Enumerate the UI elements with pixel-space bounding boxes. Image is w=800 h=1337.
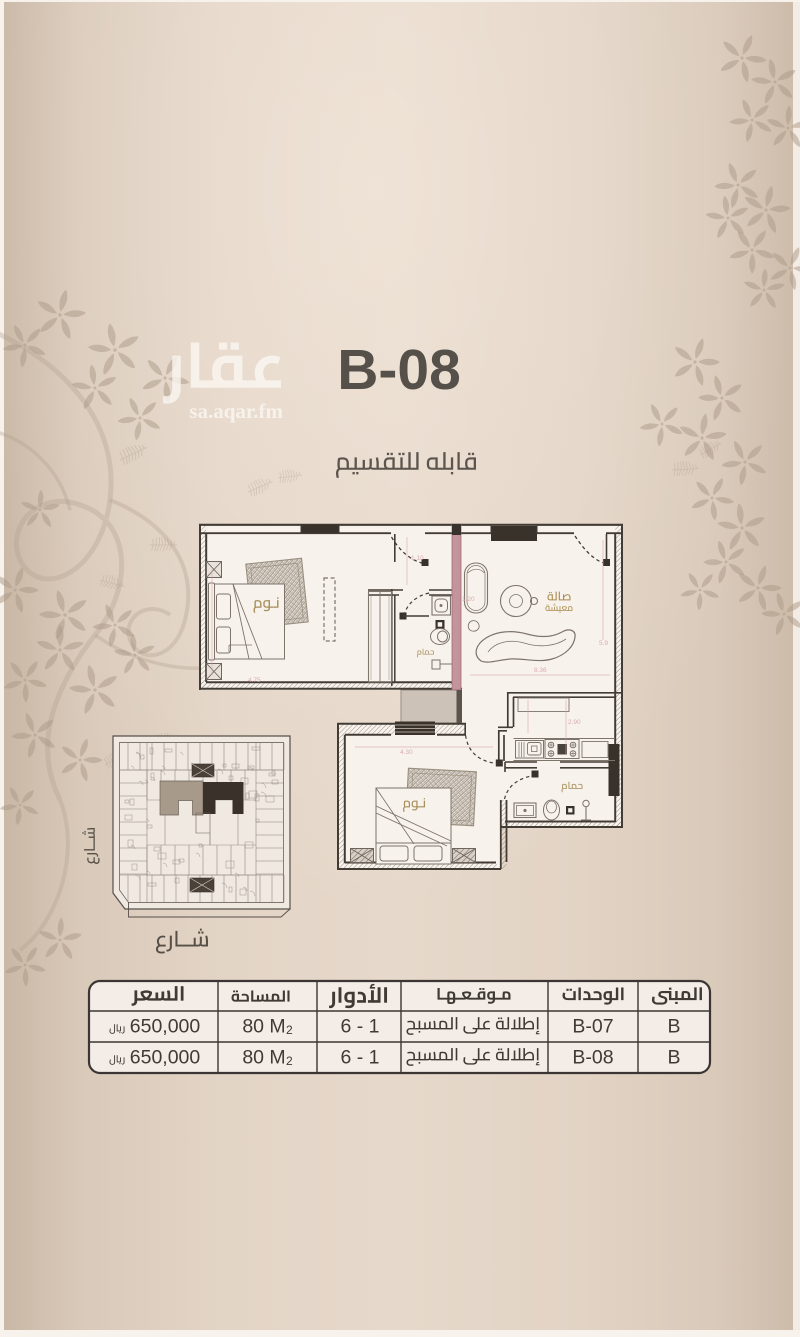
svg-text:5.9: 5.9	[599, 640, 608, 647]
svg-text:1.10: 1.10	[411, 555, 424, 562]
svg-text:sa.aqar.fm: sa.aqar.fm	[189, 399, 283, 423]
svg-text:80 M: 80 M	[242, 1047, 285, 1069]
svg-text:650,000: 650,000	[130, 1047, 201, 1069]
svg-text:4.75: 4.75	[248, 677, 261, 684]
svg-text:1.20: 1.20	[462, 596, 475, 603]
svg-text:B-08: B-08	[572, 1047, 613, 1069]
svg-text:B-07: B-07	[572, 1016, 613, 1038]
svg-text:2: 2	[286, 1023, 293, 1037]
svg-text:6 - 1: 6 - 1	[340, 1047, 379, 1069]
svg-text:6 - 1: 6 - 1	[340, 1016, 379, 1038]
svg-text:B: B	[667, 1016, 680, 1038]
svg-text:2: 2	[286, 1054, 293, 1068]
svg-text:8.36: 8.36	[534, 667, 547, 674]
svg-text:650,000: 650,000	[130, 1016, 201, 1038]
svg-text:2.90: 2.90	[568, 719, 581, 726]
svg-text:4.30: 4.30	[400, 749, 413, 756]
svg-text:B: B	[667, 1047, 680, 1069]
svg-text:80 M: 80 M	[242, 1016, 285, 1038]
svg-text:B-08: B-08	[337, 338, 461, 402]
